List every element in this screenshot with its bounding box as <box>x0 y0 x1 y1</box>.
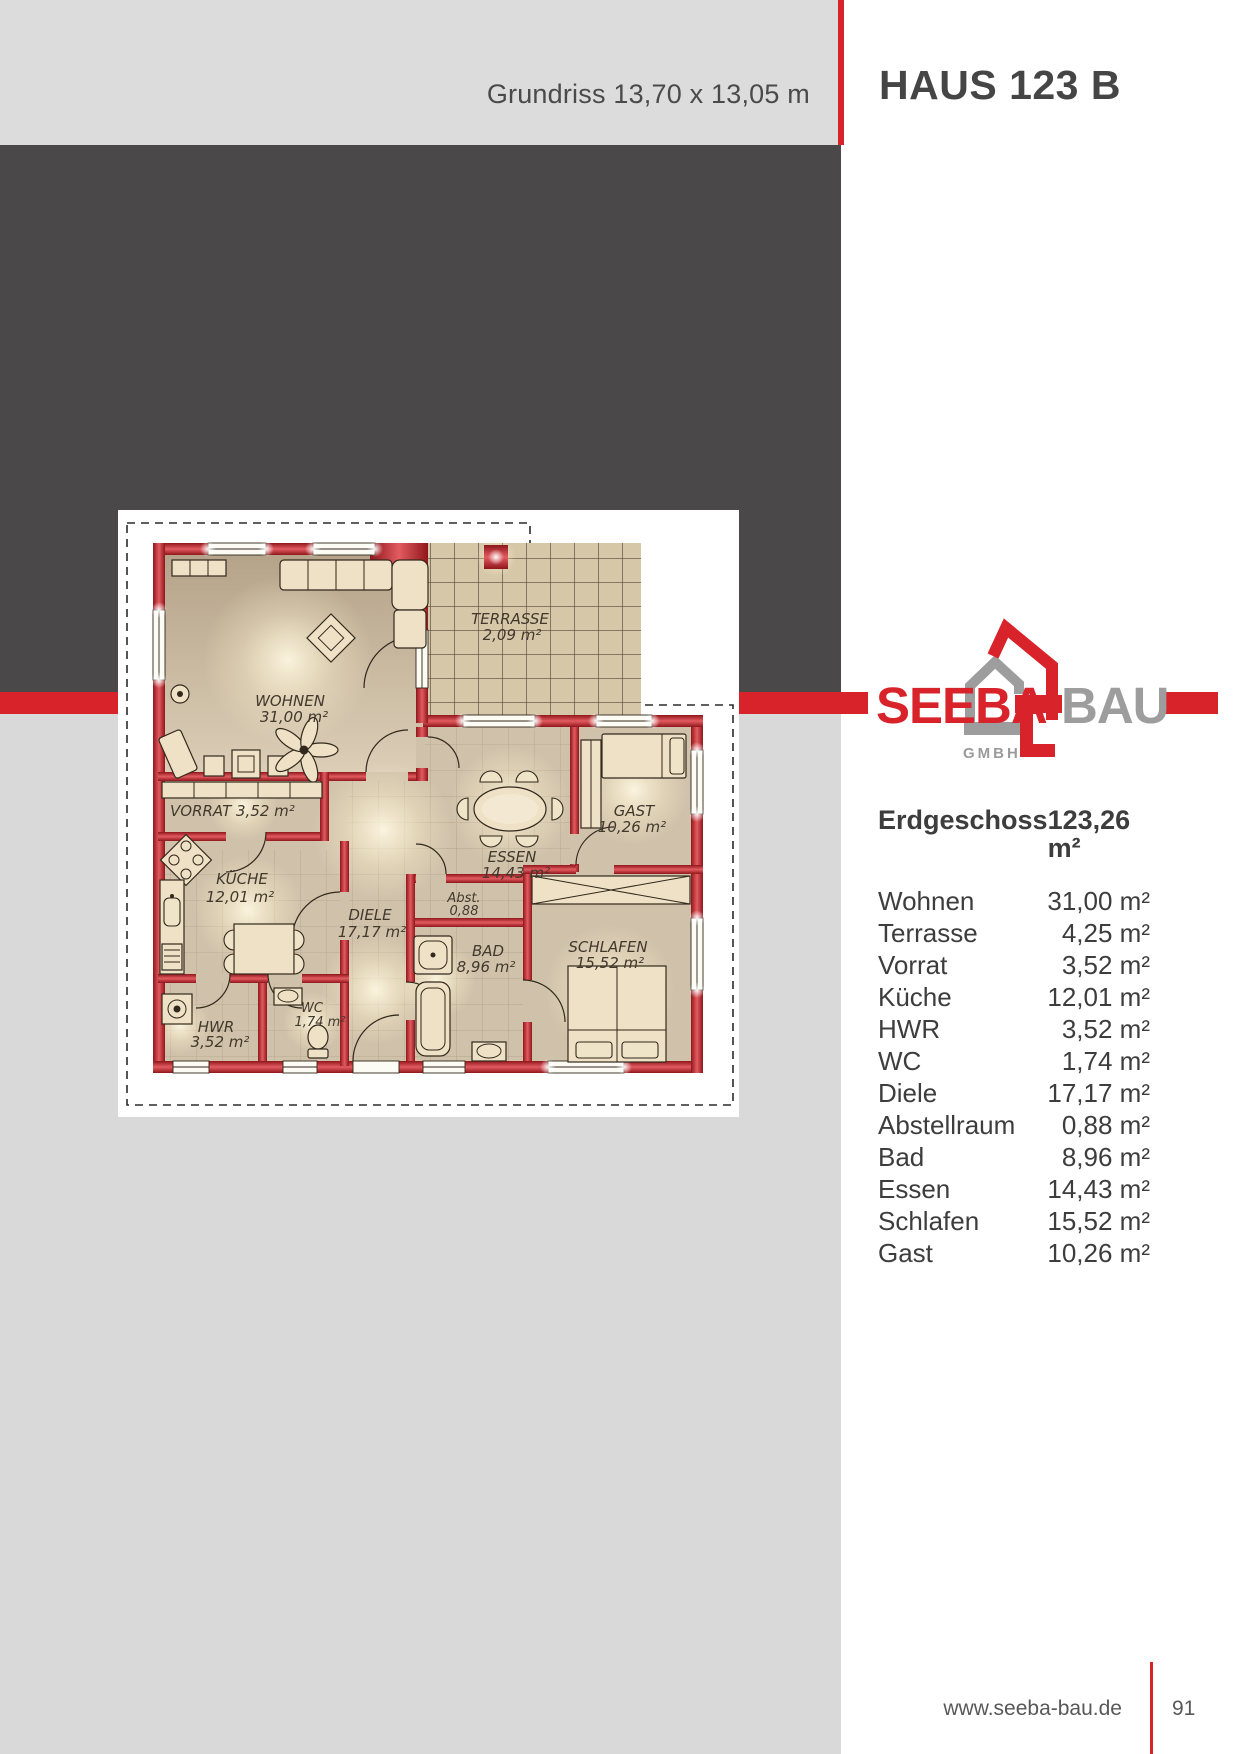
catalog-page: Grundriss 13,70 x 13,05 m HAUS 123 B <box>0 0 1241 1754</box>
table-row: Gast10,26 m² <box>878 1237 1150 1269</box>
table-row: Wohnen31,00 m² <box>878 885 1150 917</box>
area-table-heading: Erdgeschoss 123,26 m² <box>878 806 1150 862</box>
tv-unit <box>232 750 260 778</box>
table-row: HWR3,52 m² <box>878 1013 1150 1045</box>
website-link[interactable]: www.seeba-bau.de <box>880 1697 1122 1721</box>
floorplan-panel: WOHNEN31,00 m² TERRASSE2,09 m² VORRAT 3,… <box>118 510 739 1117</box>
kitchen-table <box>234 924 294 974</box>
logo-word-seeba: SEEBA <box>876 676 1047 735</box>
table-row: Bad8,96 m² <box>878 1141 1150 1173</box>
label-vorrat: VORRAT 3,52 m² <box>170 802 295 820</box>
label-kueche: KÜCHE12,01 m² <box>206 869 274 906</box>
table-row: Diele17,17 m² <box>878 1077 1150 1109</box>
logo-word-bau: BAU <box>1061 676 1169 735</box>
page-title: HAUS 123 B <box>879 62 1121 109</box>
table-row: Vorrat3,52 m² <box>878 949 1150 981</box>
area-table: Erdgeschoss 123,26 m² Wohnen31,00 m² Ter… <box>878 806 1150 1269</box>
table-row: Essen14,43 m² <box>878 1173 1150 1205</box>
plan-dimensions-label: Grundriss 13,70 x 13,05 m <box>380 79 810 110</box>
table-row: Schlafen15,52 m² <box>878 1205 1150 1237</box>
label-schlafen: SCHLAFEN15,52 m² <box>568 938 647 972</box>
sink <box>164 898 180 926</box>
page-number: 91 <box>1172 1697 1195 1721</box>
table-row: Küche12,01 m² <box>878 981 1150 1013</box>
floorplan-drawing: WOHNEN31,00 m² TERRASSE2,09 m² VORRAT 3,… <box>118 510 739 1117</box>
header-band <box>0 0 841 145</box>
header-red-divider <box>838 0 844 145</box>
floor-total-area: 123,26 m² <box>1048 806 1150 862</box>
floor-name: Erdgeschoss <box>878 806 1048 862</box>
logo-subtitle-gmbh: GMBH <box>963 745 1021 762</box>
label-abstellraum: Abst.0,88 <box>446 891 480 919</box>
label-terrasse: TERRASSE2,09 m² <box>471 610 549 644</box>
table-row: Abstellraum0,88 m² <box>878 1109 1150 1141</box>
area-table-rows: Wohnen31,00 m² Terrasse4,25 m² Vorrat3,5… <box>878 885 1150 1269</box>
label-wohnen: WOHNEN31,00 m² <box>255 692 328 726</box>
table-row: WC1,74 m² <box>878 1045 1150 1077</box>
footer-divider <box>1150 1662 1153 1754</box>
table-row: Terrasse4,25 m² <box>878 917 1150 949</box>
sideboard <box>172 560 226 576</box>
red-stripe-right <box>1162 692 1218 714</box>
